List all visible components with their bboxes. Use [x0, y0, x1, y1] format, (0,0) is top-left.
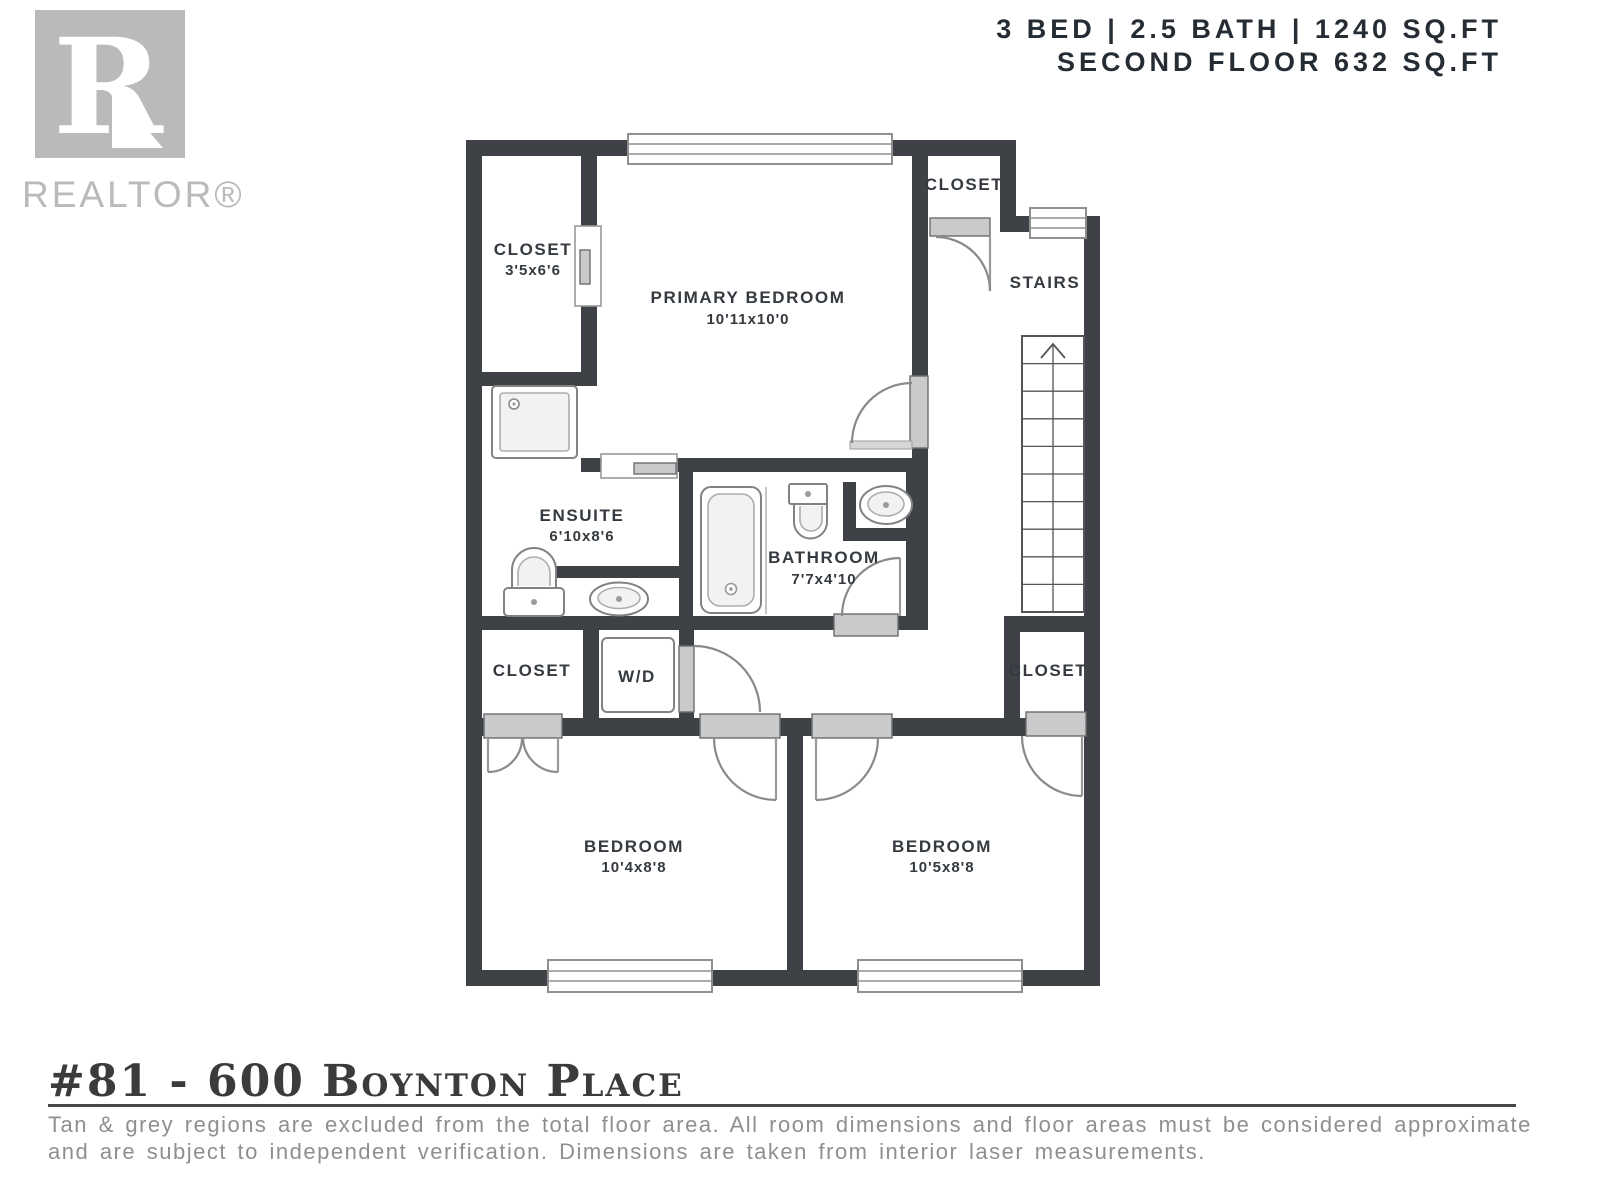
primary-bedroom-door	[850, 376, 928, 449]
room-dims-primary-bedroom: 10'11x10'0	[706, 311, 789, 328]
room-label-closet-upper-left: CLOSET	[494, 240, 573, 259]
laundry-door	[679, 646, 760, 712]
closet-upper-left-pocket-door	[575, 226, 601, 306]
ensuite-sink	[590, 583, 648, 616]
room-label-closet-upper-right: CLOSET	[925, 175, 1004, 194]
bedroom-left-window	[548, 960, 712, 992]
floorplan-canvas: R REALTOR® 3 BED | 2.5 BATH | 1240 SQ.FT…	[0, 0, 1600, 1200]
closet-upper-right-door	[930, 218, 990, 291]
room-label-closet-mid-left: CLOSET	[493, 661, 572, 680]
disclaimer-line-2: and are subject to independent verificat…	[48, 1139, 1206, 1164]
header-stats: 3 BED | 2.5 BATH | 1240 SQ.FT SECOND FLO…	[996, 14, 1502, 77]
bedroom-right-window	[858, 960, 1022, 992]
room-label-bedroom-right: BEDROOM	[892, 837, 992, 856]
realtor-logo: R REALTOR®	[22, 10, 245, 215]
closet-mid-right-door	[1022, 712, 1086, 796]
bathroom-toilet	[789, 484, 827, 539]
room-label-ensuite: ENSUITE	[540, 506, 625, 525]
realtor-wordmark: REALTOR®	[22, 174, 245, 215]
room-label-bedroom-left: BEDROOM	[584, 837, 684, 856]
room-dims-bedroom-left: 10'4x8'8	[601, 859, 666, 876]
header-line-1: 3 BED | 2.5 BATH | 1240 SQ.FT	[996, 14, 1502, 44]
bedroom-left-door	[700, 714, 780, 800]
bathroom-door	[834, 558, 900, 636]
disclaimer-line-1: Tan & grey regions are excluded from the…	[48, 1112, 1532, 1137]
bathroom-sink	[860, 486, 912, 524]
stairs-treads	[1022, 336, 1084, 612]
room-label-closet-mid-right: CLOSET	[1009, 661, 1088, 680]
room-dims-closet-upper-left: 3'5x6'6	[505, 262, 561, 279]
page-title: #81 - 600 Boynton Place	[48, 1056, 684, 1107]
room-label-primary-bedroom: PRIMARY BEDROOM	[651, 288, 846, 307]
title-underline	[48, 1104, 1516, 1107]
bedroom-left-closet-double-doors	[484, 714, 562, 772]
bathtub	[701, 487, 766, 614]
bedroom-right-door	[812, 714, 892, 800]
room-label-bathroom: BATHROOM	[768, 548, 880, 567]
room-label-stairs: STAIRS	[1010, 273, 1081, 292]
footer: #81 - 600 Boynton Place Tan & grey regio…	[48, 1056, 1532, 1164]
room-dims-bedroom-right: 10'5x8'8	[909, 859, 974, 876]
primary-bedroom-window	[628, 134, 892, 164]
room-label-laundry: W/D	[618, 667, 656, 686]
floorplan: CLOSET 3'5x6'6 PRIMARY BEDROOM 10'11x10'…	[466, 134, 1100, 992]
room-dims-bathroom: 7'7x4'10	[791, 571, 856, 588]
ensuite-opening	[601, 454, 677, 478]
ensuite-toilet	[504, 548, 564, 616]
stairs-window	[1030, 208, 1086, 238]
floorplan-page: R REALTOR® 3 BED | 2.5 BATH | 1240 SQ.FT…	[0, 0, 1600, 1200]
room-dims-ensuite: 6'10x8'6	[549, 528, 614, 545]
shower	[492, 386, 577, 458]
header-line-2: SECOND FLOOR 632 SQ.FT	[1057, 47, 1502, 77]
